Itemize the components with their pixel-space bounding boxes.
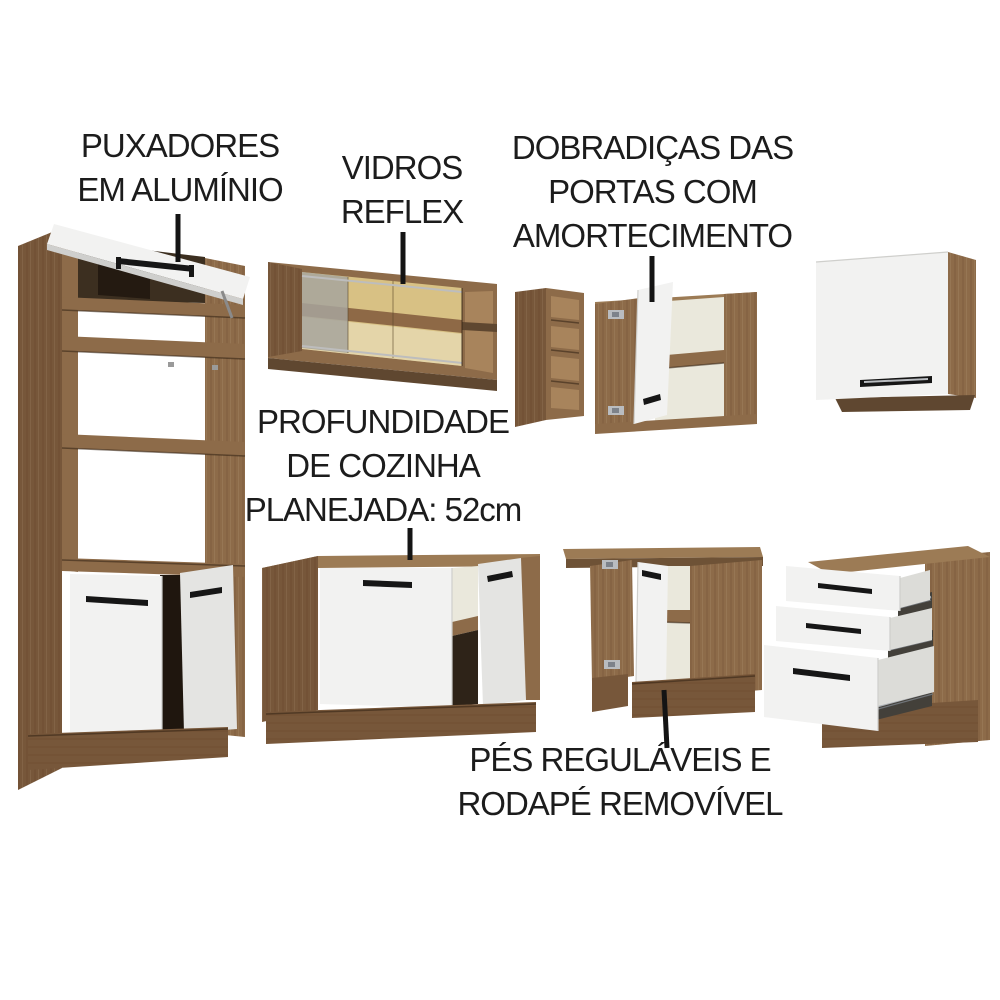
tall-oven-cabinet <box>18 224 250 790</box>
label-adjustable-feet-line-2: RODAPÉ REMOVÍVEL <box>445 782 795 826</box>
label-aluminium-handles-line-1: PUXADORES <box>30 124 330 168</box>
label-adjustable-feet: PÉS REGULÁVEIS E RODAPÉ REMOVÍVEL <box>445 738 795 826</box>
glass-wall-cabinet <box>268 262 497 391</box>
sink-base-cabinet <box>262 554 540 744</box>
label-soft-close-hinges-line-3: AMORTECIMENTO <box>490 214 815 258</box>
drawer-base-cabinet <box>764 546 990 748</box>
glass-cabinet-end-compartment <box>465 291 493 373</box>
label-soft-close-hinges: DOBRADIÇAS DAS PORTAS COM AMORTECIMENTO <box>490 126 815 258</box>
corner-base-plinth-left <box>592 674 628 712</box>
label-reflex-glass-line-2: REFLEX <box>312 190 492 234</box>
label-reflex-glass: VIDROS REFLEX <box>312 146 492 234</box>
sink-cabinet-open-door <box>478 558 526 706</box>
shelf-pin-icon <box>212 365 218 370</box>
label-soft-close-hinges-line-2: PORTAS COM <box>490 170 815 214</box>
label-aluminium-handles: PUXADORES EM ALUMÍNIO <box>30 124 330 212</box>
label-aluminium-handles-line-2: EM ALUMÍNIO <box>30 168 330 212</box>
sink-cabinet-door <box>320 568 452 708</box>
shelf-pin-icon <box>168 362 174 367</box>
label-planned-depth: PROFUNDIDADE DE COZINHA PLANEJADA: 52cm <box>223 400 543 532</box>
label-planned-depth-line-3: PLANEJADA: 52cm <box>223 488 543 532</box>
drawer-3-front <box>764 645 878 731</box>
label-planned-depth-line-2: DE COZINHA <box>223 444 543 488</box>
corner-wall-open-door <box>634 282 673 424</box>
wall-cabinet <box>816 252 976 412</box>
tall-cabinet-left-stile <box>62 230 78 572</box>
tall-cabinet-plinth-grain <box>28 727 228 770</box>
label-reflex-glass-line-1: VIDROS <box>312 146 492 190</box>
glass-cabinet-left-grain <box>268 262 302 357</box>
wall-cabinet-side-grain <box>948 252 976 398</box>
label-soft-close-hinges-line-1: DOBRADIÇAS DAS <box>490 126 815 170</box>
corner-base-open-door <box>636 562 668 688</box>
glass-gray-panel <box>302 272 348 353</box>
corner-wall-cabinet <box>595 282 757 434</box>
product-feature-image: PUXADORES EM ALUMÍNIO VIDROS REFLEX DOBR… <box>0 0 1000 1000</box>
label-adjustable-feet-line-1: PÉS REGULÁVEIS E <box>445 738 795 782</box>
sink-cabinet-open-dark <box>452 630 478 706</box>
corner-base-countertop <box>563 547 763 559</box>
corner-base-interior <box>664 566 690 688</box>
corner-wall-right-grain <box>724 292 757 420</box>
tall-cabinet-side-grain <box>18 228 62 790</box>
label-planned-depth-line-1: PROFUNDIDADE <box>223 400 543 444</box>
sink-cabinet-side-grain <box>262 556 318 722</box>
